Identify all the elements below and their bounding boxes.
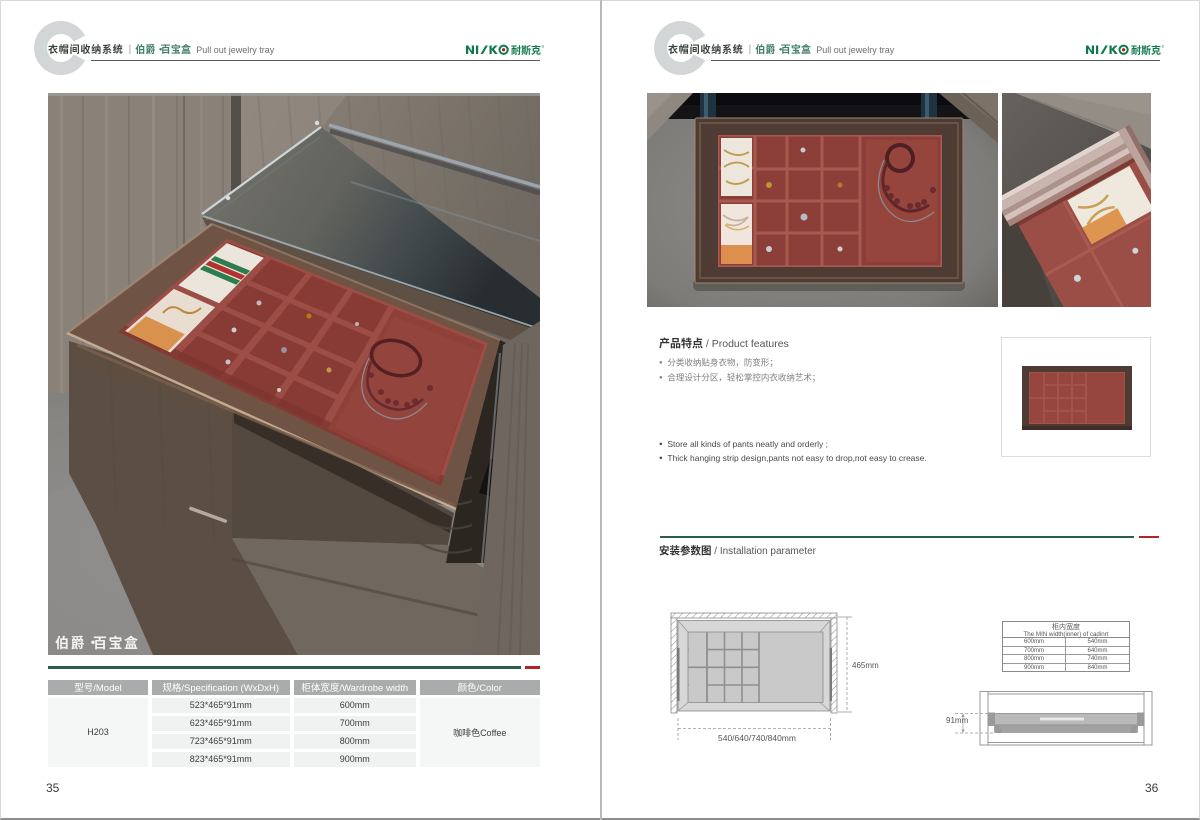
svg-text:®: ® <box>542 44 545 49</box>
svg-text:465mm: 465mm <box>852 661 879 670</box>
svg-text:®: ® <box>1162 44 1165 49</box>
svg-text:耐斯克: 耐斯克 <box>511 44 541 56</box>
svg-text:540/640/740/840mm: 540/640/740/840mm <box>718 733 796 743</box>
svg-text:耐斯克: 耐斯克 <box>1131 44 1161 56</box>
